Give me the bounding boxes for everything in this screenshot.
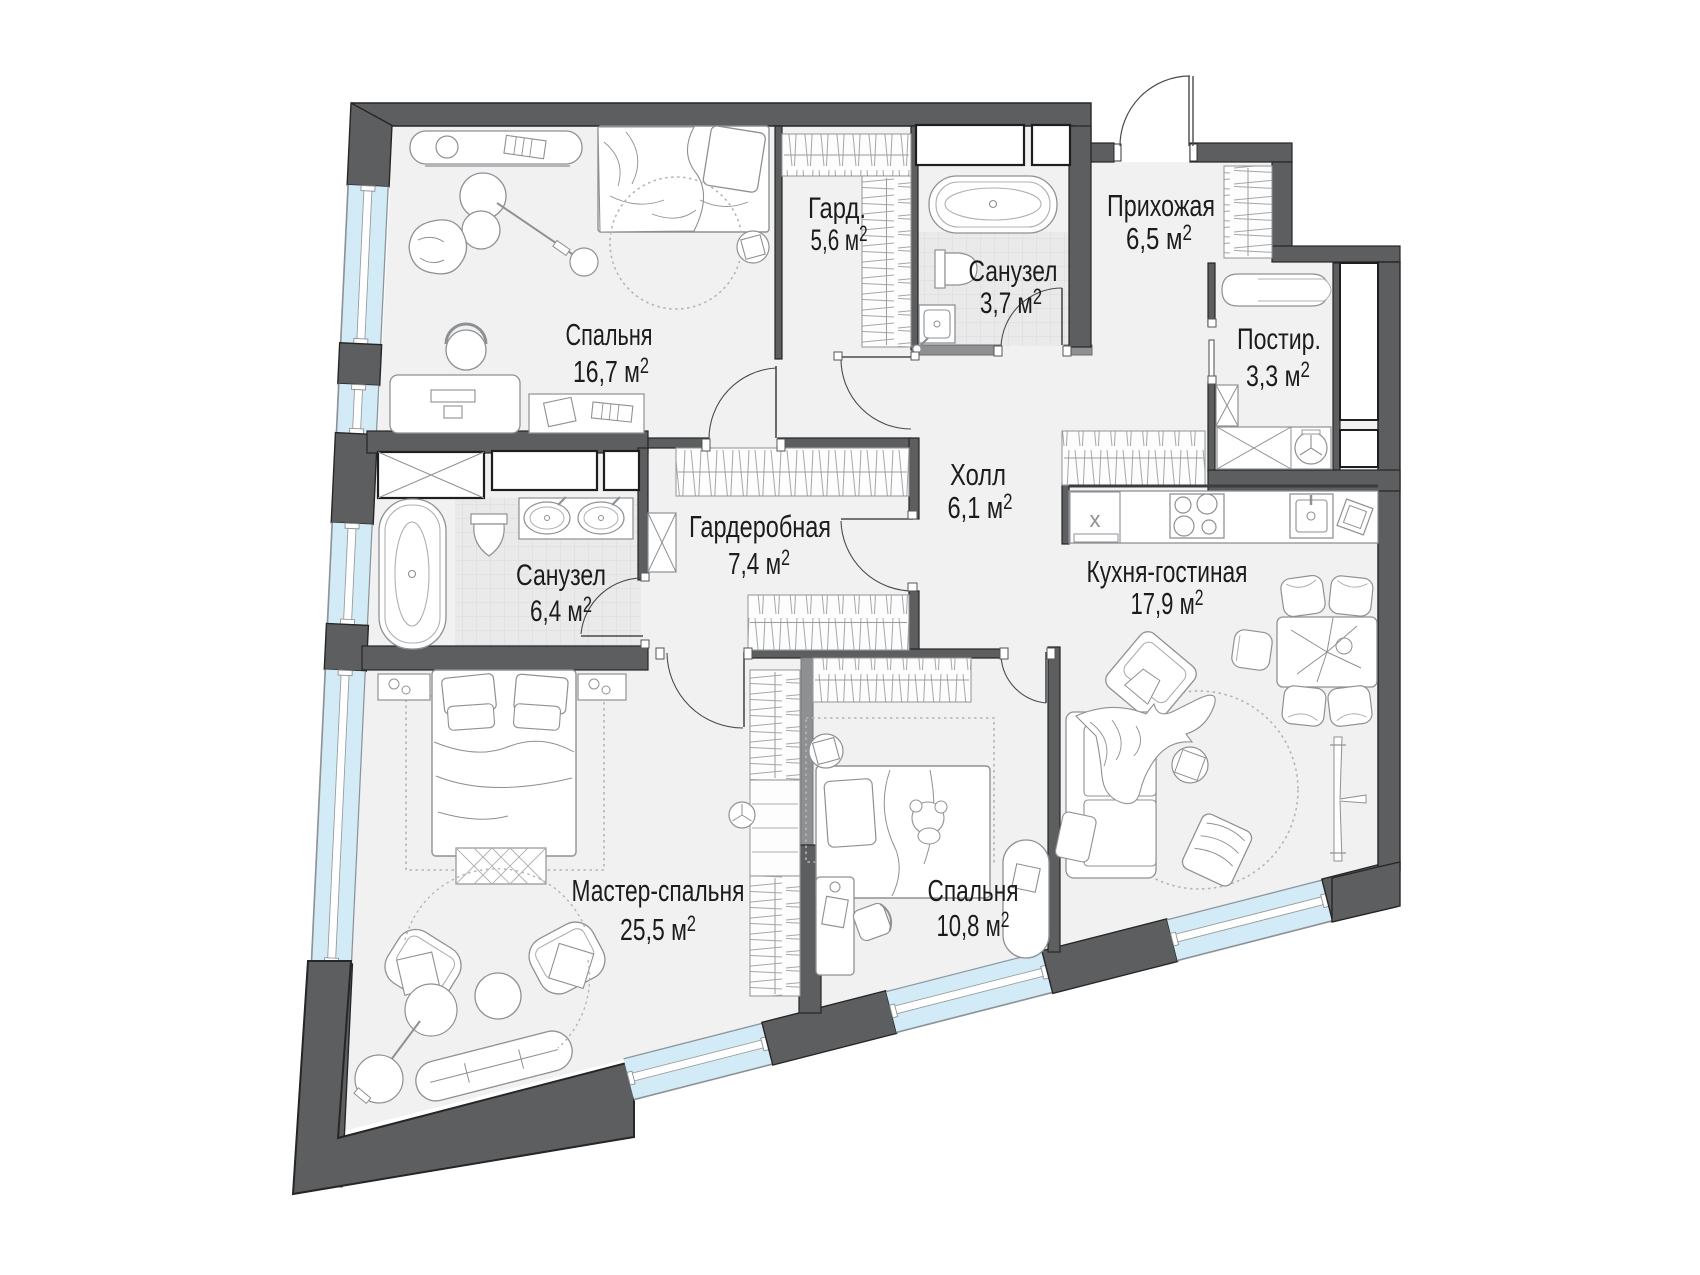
- svg-text:x: x: [1090, 507, 1101, 532]
- svg-text:3,7 м2: 3,7 м2: [980, 284, 1042, 320]
- svg-text:Гардеробная: Гардеробная: [689, 509, 831, 544]
- svg-text:Кухня-гостиная: Кухня-гостиная: [1087, 554, 1248, 589]
- svg-text:Холл: Холл: [950, 457, 1006, 492]
- svg-text:Санузел: Санузел: [516, 559, 606, 592]
- svg-text:16,7 м2: 16,7 м2: [573, 353, 649, 389]
- svg-text:10,8 м2: 10,8 м2: [937, 907, 1010, 943]
- svg-text:7,4 м2: 7,4 м2: [728, 545, 790, 581]
- svg-text:6,1 м2: 6,1 м2: [948, 489, 1013, 525]
- svg-text:Спальня: Спальня: [566, 317, 653, 352]
- svg-text:6,4 м2: 6,4 м2: [530, 592, 592, 628]
- svg-text:5,6 м2: 5,6 м2: [811, 221, 868, 257]
- svg-text:Прихожая: Прихожая: [1107, 188, 1215, 223]
- svg-text:6,5 м2: 6,5 м2: [1126, 220, 1192, 256]
- svg-text:17,9 м2: 17,9 м2: [1131, 585, 1204, 621]
- svg-text:3,3 м2: 3,3 м2: [1246, 357, 1310, 393]
- svg-text:Мастер-спальня: Мастер-спальня: [572, 873, 745, 908]
- svg-text:Постир.: Постир.: [1237, 323, 1321, 356]
- svg-text:Спальня: Спальня: [928, 873, 1019, 908]
- svg-text:Гард.: Гард.: [808, 192, 866, 225]
- svg-text:Санузел: Санузел: [969, 255, 1058, 288]
- svg-text:25,5 м2: 25,5 м2: [620, 911, 696, 947]
